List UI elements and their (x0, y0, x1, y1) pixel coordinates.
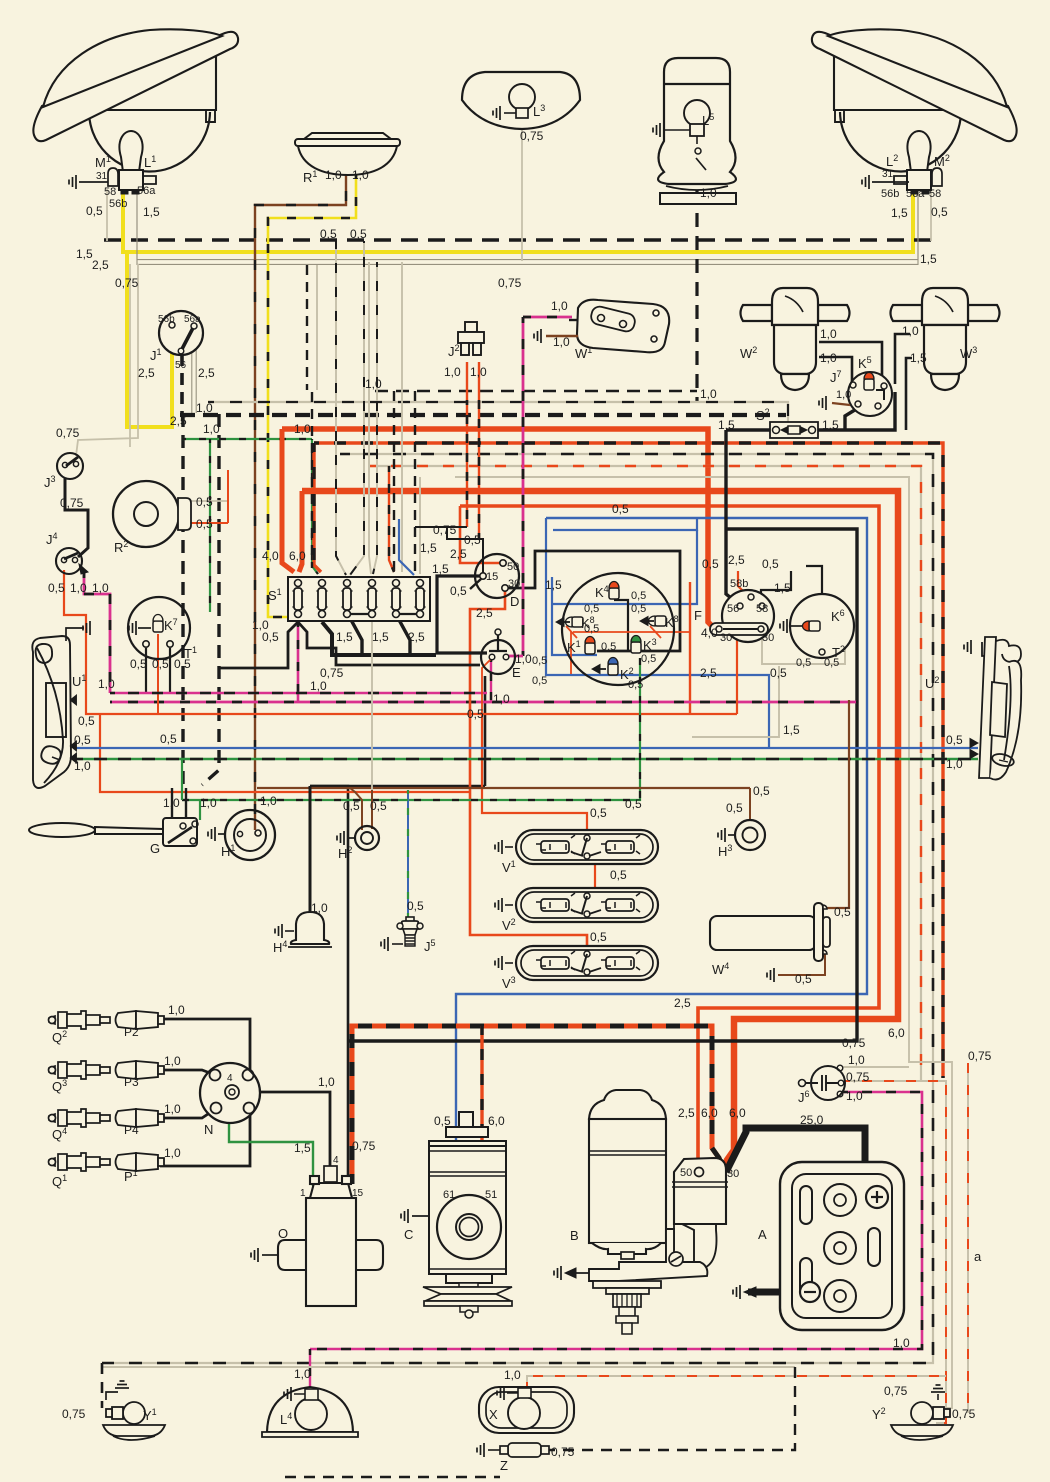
svg-text:0,5: 0,5 (631, 590, 646, 602)
svg-text:50: 50 (507, 561, 519, 573)
svg-text:0,75: 0,75 (56, 426, 80, 440)
svg-text:P2: P2 (124, 1025, 139, 1039)
svg-text:1,0: 1,0 (444, 365, 461, 379)
svg-text:0,5: 0,5 (931, 205, 948, 219)
svg-text:1,5: 1,5 (420, 541, 437, 555)
svg-text:1,5: 1,5 (774, 581, 791, 595)
svg-text:1,0: 1,0 (700, 387, 717, 401)
svg-text:6,0: 6,0 (289, 549, 306, 563)
svg-text:2,5: 2,5 (408, 630, 425, 644)
svg-text:1,5: 1,5 (822, 418, 839, 432)
svg-text:31: 31 (882, 169, 894, 180)
svg-text:30: 30 (720, 632, 732, 644)
svg-text:1,5: 1,5 (545, 578, 562, 592)
svg-text:1,0: 1,0 (902, 324, 919, 338)
svg-text:4: 4 (333, 1155, 339, 1166)
svg-text:2,5: 2,5 (450, 547, 467, 561)
svg-text:2,5: 2,5 (138, 366, 155, 380)
svg-text:56b: 56b (109, 198, 127, 210)
svg-text:N: N (204, 1122, 213, 1137)
svg-text:2,5: 2,5 (728, 553, 745, 567)
svg-text:0,5: 0,5 (407, 899, 424, 913)
svg-text:1,0: 1,0 (551, 299, 568, 313)
svg-text:58: 58 (756, 603, 768, 615)
svg-text:1,0: 1,0 (168, 1003, 185, 1017)
svg-text:1,0: 1,0 (200, 796, 217, 810)
svg-text:P3: P3 (124, 1075, 139, 1089)
svg-text:4,0: 4,0 (262, 549, 279, 563)
svg-text:58: 58 (104, 186, 116, 198)
svg-text:6,0: 6,0 (488, 1114, 505, 1128)
svg-text:2,5: 2,5 (476, 606, 493, 620)
svg-text:0,5: 0,5 (450, 584, 467, 598)
svg-text:1,5: 1,5 (372, 630, 389, 644)
svg-text:2,5: 2,5 (700, 666, 717, 680)
svg-text:0,75: 0,75 (352, 1139, 376, 1153)
svg-text:0,5: 0,5 (464, 533, 481, 547)
svg-text:1,0: 1,0 (820, 351, 837, 365)
svg-text:0,5: 0,5 (834, 905, 851, 919)
svg-text:0,5: 0,5 (762, 557, 779, 571)
svg-text:1,5: 1,5 (718, 418, 735, 432)
svg-text:61: 61 (443, 1189, 455, 1201)
svg-text:25,0: 25,0 (800, 1113, 824, 1127)
svg-text:0,5: 0,5 (343, 799, 360, 813)
svg-text:0,5: 0,5 (196, 517, 213, 531)
svg-text:0,5: 0,5 (824, 657, 839, 669)
svg-text:1,0: 1,0 (203, 422, 220, 436)
svg-text:1,0: 1,0 (504, 1368, 521, 1382)
svg-text:0,5: 0,5 (590, 930, 607, 944)
svg-text:58: 58 (929, 188, 941, 200)
svg-text:1,0: 1,0 (196, 401, 213, 415)
svg-text:0,5: 0,5 (584, 623, 599, 635)
svg-text:0,5: 0,5 (152, 657, 169, 671)
svg-text:0,5: 0,5 (74, 733, 91, 747)
svg-text:1,0: 1,0 (310, 679, 327, 693)
svg-text:2,5: 2,5 (678, 1106, 695, 1120)
svg-text:0,5: 0,5 (196, 495, 213, 509)
svg-text:1,0: 1,0 (92, 581, 109, 595)
svg-text:0,75: 0,75 (62, 1407, 86, 1421)
svg-text:56a: 56a (906, 188, 925, 200)
svg-text:0,5: 0,5 (78, 714, 95, 728)
svg-text:0,5: 0,5 (631, 603, 646, 615)
svg-text:1,0: 1,0 (294, 1367, 311, 1381)
svg-text:51: 51 (485, 1189, 497, 1201)
svg-text:2,5: 2,5 (170, 414, 187, 428)
svg-text:0,5: 0,5 (434, 1114, 451, 1128)
svg-text:O: O (278, 1226, 288, 1241)
svg-text:1,5: 1,5 (76, 247, 93, 261)
svg-text:1,0: 1,0 (365, 377, 382, 391)
svg-text:2,5: 2,5 (674, 996, 691, 1010)
svg-text:1,0: 1,0 (74, 759, 91, 773)
svg-text:0,5: 0,5 (532, 675, 547, 687)
svg-text:0,5: 0,5 (160, 732, 177, 746)
svg-text:0,5: 0,5 (796, 657, 811, 669)
svg-text:1,5: 1,5 (432, 562, 449, 576)
svg-text:0,75: 0,75 (884, 1384, 908, 1398)
svg-text:0,75: 0,75 (60, 496, 84, 510)
svg-text:0,5: 0,5 (726, 801, 743, 815)
svg-text:56b: 56b (158, 314, 175, 325)
svg-text:1,0: 1,0 (352, 168, 369, 182)
svg-text:56: 56 (727, 603, 739, 615)
svg-text:0,75: 0,75 (846, 1070, 870, 1084)
svg-text:0,5: 0,5 (946, 733, 963, 747)
svg-text:58b: 58b (730, 578, 748, 590)
svg-text:1,0: 1,0 (515, 652, 532, 666)
svg-text:30: 30 (727, 1168, 739, 1180)
svg-text:0,5: 0,5 (702, 557, 719, 571)
svg-text:1,5: 1,5 (336, 630, 353, 644)
svg-text:0,5: 0,5 (584, 603, 599, 615)
svg-text:1,0: 1,0 (164, 1102, 181, 1116)
svg-text:0,75: 0,75 (498, 276, 522, 290)
svg-text:0,5: 0,5 (532, 655, 547, 667)
svg-text:1,0: 1,0 (163, 796, 180, 810)
svg-text:4,0: 4,0 (701, 626, 718, 640)
svg-text:0,75: 0,75 (968, 1049, 992, 1063)
svg-text:1,5: 1,5 (891, 206, 908, 220)
svg-text:0,75: 0,75 (842, 1036, 866, 1050)
svg-text:F: F (694, 608, 702, 623)
svg-text:1,0: 1,0 (820, 327, 837, 341)
svg-text:0,5: 0,5 (350, 227, 367, 241)
svg-text:0,5: 0,5 (86, 204, 103, 218)
svg-text:1,5: 1,5 (910, 351, 927, 365)
svg-text:56: 56 (175, 360, 187, 371)
svg-text:30: 30 (508, 578, 520, 590)
svg-text:6,0: 6,0 (729, 1106, 746, 1120)
svg-text:0,5: 0,5 (320, 227, 337, 241)
svg-text:56b: 56b (881, 188, 899, 200)
svg-text:0,5: 0,5 (467, 707, 484, 721)
svg-text:0,75: 0,75 (320, 666, 344, 680)
svg-text:0,5: 0,5 (130, 657, 147, 671)
svg-text:0,5: 0,5 (262, 630, 279, 644)
svg-text:1,0: 1,0 (260, 794, 277, 808)
svg-text:0,5: 0,5 (174, 657, 191, 671)
svg-text:15: 15 (352, 1188, 364, 1199)
svg-text:1,0: 1,0 (318, 1075, 335, 1089)
svg-text:6,0: 6,0 (701, 1106, 718, 1120)
svg-text:2,5: 2,5 (92, 258, 109, 272)
svg-text:0,75: 0,75 (551, 1445, 575, 1459)
svg-text:1,0: 1,0 (294, 422, 311, 436)
svg-text:1,5: 1,5 (920, 252, 937, 266)
svg-text:1,0: 1,0 (470, 365, 487, 379)
svg-text:1,0: 1,0 (846, 1089, 863, 1103)
svg-text:1,0: 1,0 (164, 1054, 181, 1068)
svg-text:6,0: 6,0 (888, 1026, 905, 1040)
svg-text:0,5: 0,5 (601, 641, 616, 653)
svg-text:0,5: 0,5 (48, 581, 65, 595)
svg-text:1,0: 1,0 (493, 692, 510, 706)
svg-text:1,0: 1,0 (70, 581, 87, 595)
svg-text:0,5: 0,5 (753, 784, 770, 798)
svg-text:0,75: 0,75 (952, 1407, 976, 1421)
svg-text:0,5: 0,5 (628, 679, 643, 691)
svg-text:0,75: 0,75 (433, 523, 457, 537)
svg-text:0,5: 0,5 (370, 799, 387, 813)
svg-text:E: E (512, 665, 521, 680)
svg-text:1,0: 1,0 (553, 335, 570, 349)
svg-text:0,5: 0,5 (625, 797, 642, 811)
svg-text:0,5: 0,5 (641, 653, 656, 665)
svg-text:0,5: 0,5 (590, 806, 607, 820)
svg-text:1,0: 1,0 (325, 168, 342, 182)
svg-text:50: 50 (680, 1167, 692, 1179)
svg-text:C: C (404, 1227, 413, 1242)
svg-text:2,5: 2,5 (198, 366, 215, 380)
svg-text:30: 30 (762, 632, 774, 644)
svg-text:56a: 56a (137, 185, 156, 197)
svg-text:0,5: 0,5 (770, 666, 787, 680)
svg-text:31: 31 (96, 171, 108, 182)
svg-text:B: B (570, 1228, 579, 1243)
svg-text:D: D (510, 594, 519, 609)
svg-text:0,5: 0,5 (610, 868, 627, 882)
svg-text:1,5: 1,5 (143, 205, 160, 219)
svg-text:4: 4 (227, 1073, 233, 1084)
svg-text:0,5: 0,5 (612, 502, 629, 516)
svg-text:1,5: 1,5 (783, 723, 800, 737)
svg-text:0,5: 0,5 (795, 972, 812, 986)
svg-text:A: A (758, 1227, 767, 1242)
svg-text:1,0: 1,0 (700, 186, 717, 200)
svg-text:Z: Z (500, 1458, 508, 1473)
svg-text:1,0: 1,0 (164, 1146, 181, 1160)
svg-text:1,0: 1,0 (98, 677, 115, 691)
svg-text:G: G (150, 841, 160, 856)
svg-text:P4: P4 (124, 1123, 139, 1137)
svg-text:15: 15 (486, 571, 498, 583)
svg-text:0,75: 0,75 (520, 129, 544, 143)
svg-text:1,0: 1,0 (836, 389, 851, 401)
svg-text:0,75: 0,75 (115, 276, 139, 290)
svg-text:56a: 56a (184, 314, 201, 325)
svg-text:1,5: 1,5 (294, 1141, 311, 1155)
svg-text:1: 1 (300, 1188, 306, 1199)
svg-text:1,0: 1,0 (893, 1336, 910, 1350)
svg-text:1,0: 1,0 (946, 757, 963, 771)
svg-text:1,0: 1,0 (848, 1053, 865, 1067)
svg-text:1,0: 1,0 (311, 901, 328, 915)
svg-text:X: X (489, 1407, 498, 1422)
svg-text:a: a (974, 1249, 982, 1264)
